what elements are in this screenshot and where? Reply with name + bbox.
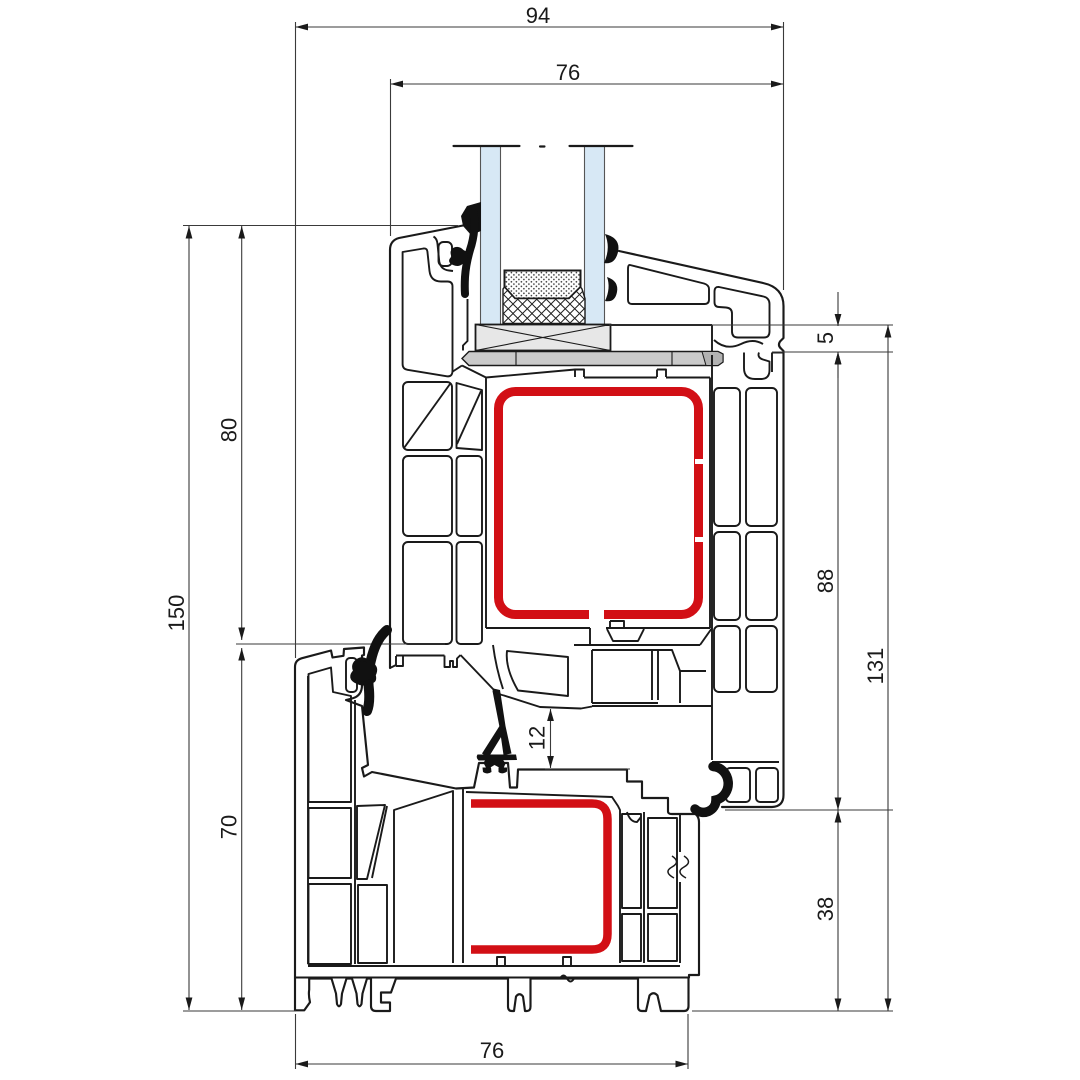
svg-text:76: 76 <box>556 60 580 85</box>
svg-text:94: 94 <box>526 3 550 28</box>
svg-text:131: 131 <box>863 648 888 685</box>
svg-text:38: 38 <box>813 897 838 921</box>
svg-text:70: 70 <box>217 815 242 839</box>
svg-text:80: 80 <box>217 418 242 442</box>
svg-text:76: 76 <box>480 1038 504 1063</box>
svg-text:12: 12 <box>525 726 550 750</box>
svg-text:150: 150 <box>164 595 189 632</box>
svg-text:88: 88 <box>813 569 838 593</box>
svg-text:5: 5 <box>813 332 838 344</box>
